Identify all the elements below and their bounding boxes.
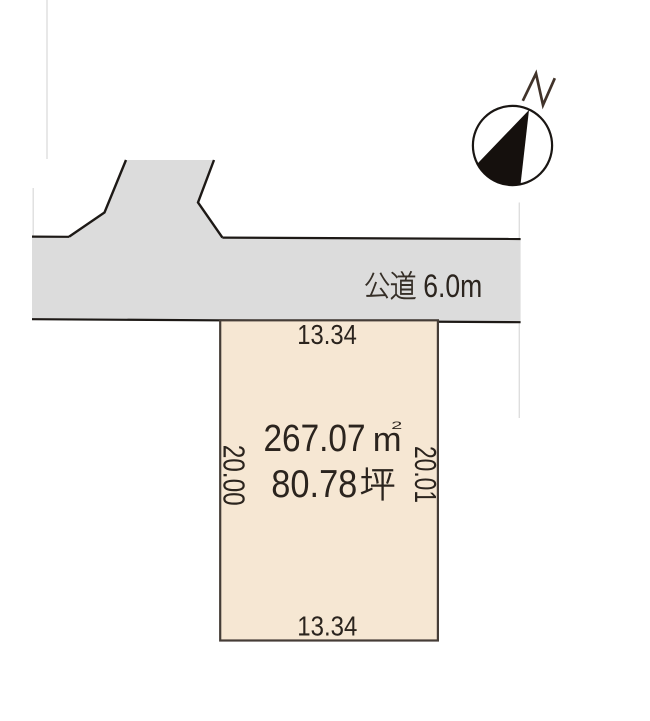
svg-text:267.07: 267.07 xyxy=(264,418,366,460)
svg-text:6.0m: 6.0m xyxy=(423,268,482,304)
svg-text:20.01: 20.01 xyxy=(408,446,443,503)
svg-text:80.78: 80.78 xyxy=(271,463,357,506)
svg-text:20.00: 20.00 xyxy=(217,445,252,506)
svg-text:2: 2 xyxy=(391,420,402,432)
svg-text:13.34: 13.34 xyxy=(297,610,357,641)
svg-text:13.34: 13.34 xyxy=(297,319,357,350)
